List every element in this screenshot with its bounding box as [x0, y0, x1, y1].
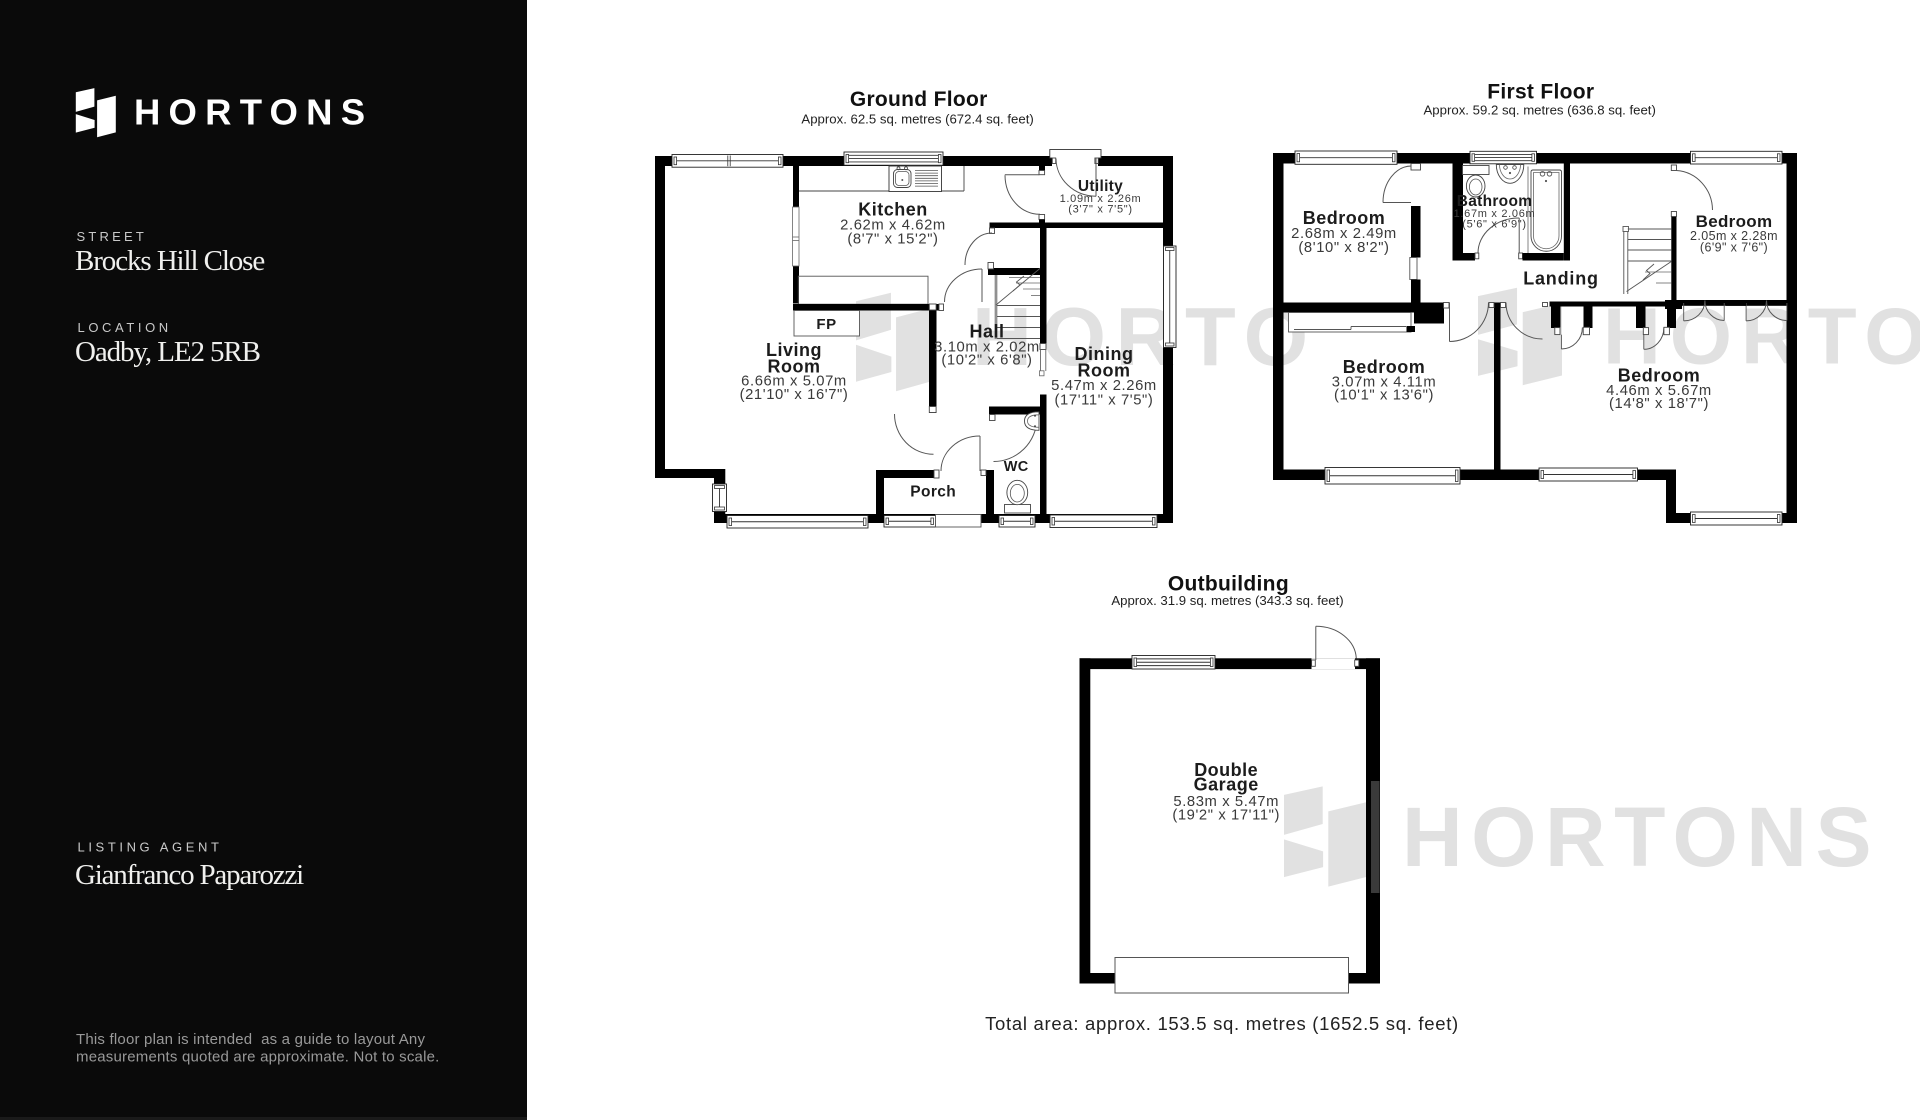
- svg-text:Approx. 59.2 sq. metres (636.8: Approx. 59.2 sq. metres (636.8 sq. feet): [1424, 103, 1656, 118]
- svg-text:Brocks Hill Close: Brocks Hill Close: [75, 245, 264, 277]
- svg-text:(5'6" x 6'9"): (5'6" x 6'9"): [1462, 219, 1527, 231]
- svg-text:(10'1" x 13'6"): (10'1" x 13'6"): [1334, 388, 1434, 404]
- svg-text:HORTONS: HORTONS: [134, 92, 373, 133]
- svg-text:WC: WC: [1004, 459, 1029, 475]
- svg-text:Porch: Porch: [910, 484, 956, 501]
- svg-text:(8'10" x 8'2"): (8'10" x 8'2"): [1298, 240, 1389, 256]
- svg-text:Total area: approx. 153.5 sq.: Total area: approx. 153.5 sq. metres (16…: [985, 1013, 1459, 1034]
- svg-text:Bedroom: Bedroom: [1303, 208, 1386, 228]
- svg-text:STREET: STREET: [77, 229, 147, 244]
- svg-text:(10'2" x 6'8"): (10'2" x 6'8"): [941, 353, 1032, 369]
- svg-text:(8'7" x 15'2"): (8'7" x 15'2"): [847, 231, 938, 247]
- svg-text:(6'9" x 7'6"): (6'9" x 7'6"): [1700, 241, 1768, 255]
- svg-text:HORTO: HORTO: [972, 290, 1318, 383]
- svg-text:(21'10" x 16'7"): (21'10" x 16'7"): [740, 387, 849, 403]
- svg-text:LISTING AGENT: LISTING AGENT: [78, 840, 223, 855]
- svg-text:FP: FP: [816, 316, 836, 333]
- svg-text:(17'11" x 7'5"): (17'11" x 7'5"): [1055, 393, 1154, 409]
- svg-text:Landing: Landing: [1523, 269, 1599, 289]
- svg-text:Approx. 31.9 sq. metres (343.3: Approx. 31.9 sq. metres (343.3 sq. feet): [1111, 593, 1343, 608]
- svg-text:measurements quoted are approx: measurements quoted are approximate. Not…: [76, 1049, 440, 1066]
- svg-text:(3'7" x 7'5"): (3'7" x 7'5"): [1068, 204, 1133, 216]
- svg-text:Hall: Hall: [969, 322, 1004, 342]
- svg-text:Gianfranco Paparozzi: Gianfranco Paparozzi: [75, 859, 304, 891]
- svg-text:Kitchen: Kitchen: [858, 200, 928, 220]
- svg-text:HORTONS: HORTONS: [1402, 790, 1880, 884]
- svg-text:(19'2" x 17'11"): (19'2" x 17'11"): [1172, 808, 1280, 824]
- svg-text:First Floor: First Floor: [1487, 81, 1594, 104]
- svg-text:Oadby, LE2 5RB: Oadby, LE2 5RB: [75, 336, 260, 368]
- svg-text:LOCATION: LOCATION: [78, 320, 172, 335]
- svg-text:Garage: Garage: [1194, 775, 1259, 795]
- svg-text:Ground Floor: Ground Floor: [850, 88, 988, 111]
- svg-text:This floor plan is intended a: This floor plan is intended as a guide t…: [76, 1031, 425, 1048]
- svg-text:Approx. 62.5 sq. metres (672.4: Approx. 62.5 sq. metres (672.4 sq. feet): [801, 112, 1033, 127]
- svg-text:(14'8" x 18'7"): (14'8" x 18'7"): [1609, 396, 1709, 412]
